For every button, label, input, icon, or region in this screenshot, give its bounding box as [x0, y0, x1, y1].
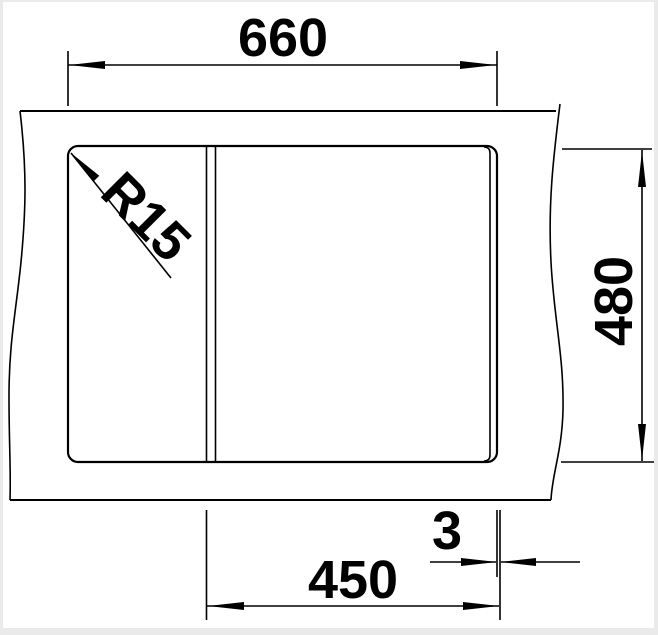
arrowhead-right	[460, 61, 496, 69]
dimension-edge-offset: 3	[430, 501, 580, 577]
arrowhead-left	[208, 602, 244, 610]
edge-offset-label: 3	[432, 501, 462, 561]
arrowhead-inward-right	[500, 558, 536, 566]
worktop-left-break-line	[9, 111, 25, 500]
frame-top	[0, 0, 658, 2]
arrowhead-inward-left	[461, 558, 497, 566]
frame-border	[0, 0, 658, 635]
radius-callout: R15	[71, 153, 202, 278]
inner-right-edge-line	[484, 147, 490, 461]
technical-drawing-canvas: 660 480 450 3	[0, 0, 658, 635]
frame-bottom	[0, 628, 658, 635]
arrowhead-radius	[71, 153, 99, 181]
arrowhead-top	[638, 151, 646, 187]
frame-right	[654, 0, 658, 635]
worktop-right-break-line	[550, 104, 563, 500]
dimension-cutout-depth: 480	[561, 149, 655, 462]
technical-drawing-page: 660 480 450 3	[0, 0, 658, 635]
arrowhead-left	[69, 61, 105, 69]
dimension-cutout-width: 660	[68, 8, 497, 106]
arrowhead-right	[463, 602, 499, 610]
bowl-width-label: 450	[308, 550, 398, 610]
arrowhead-bottom	[638, 424, 646, 460]
frame-left	[0, 0, 3, 635]
corner-radius-label: R15	[90, 161, 202, 273]
worktop-outline	[9, 104, 563, 500]
cutout-depth-label: 480	[584, 256, 644, 346]
cutout-width-label: 660	[238, 8, 328, 68]
